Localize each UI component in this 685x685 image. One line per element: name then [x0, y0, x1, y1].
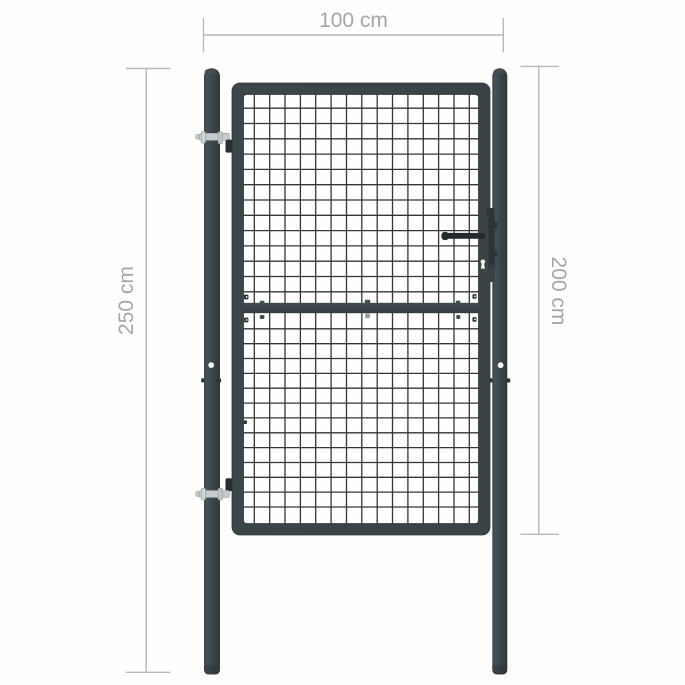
- svg-text:250 cm: 250 cm: [115, 266, 138, 335]
- svg-text:100 cm: 100 cm: [319, 9, 388, 32]
- svg-text:200 cm: 200 cm: [547, 257, 570, 326]
